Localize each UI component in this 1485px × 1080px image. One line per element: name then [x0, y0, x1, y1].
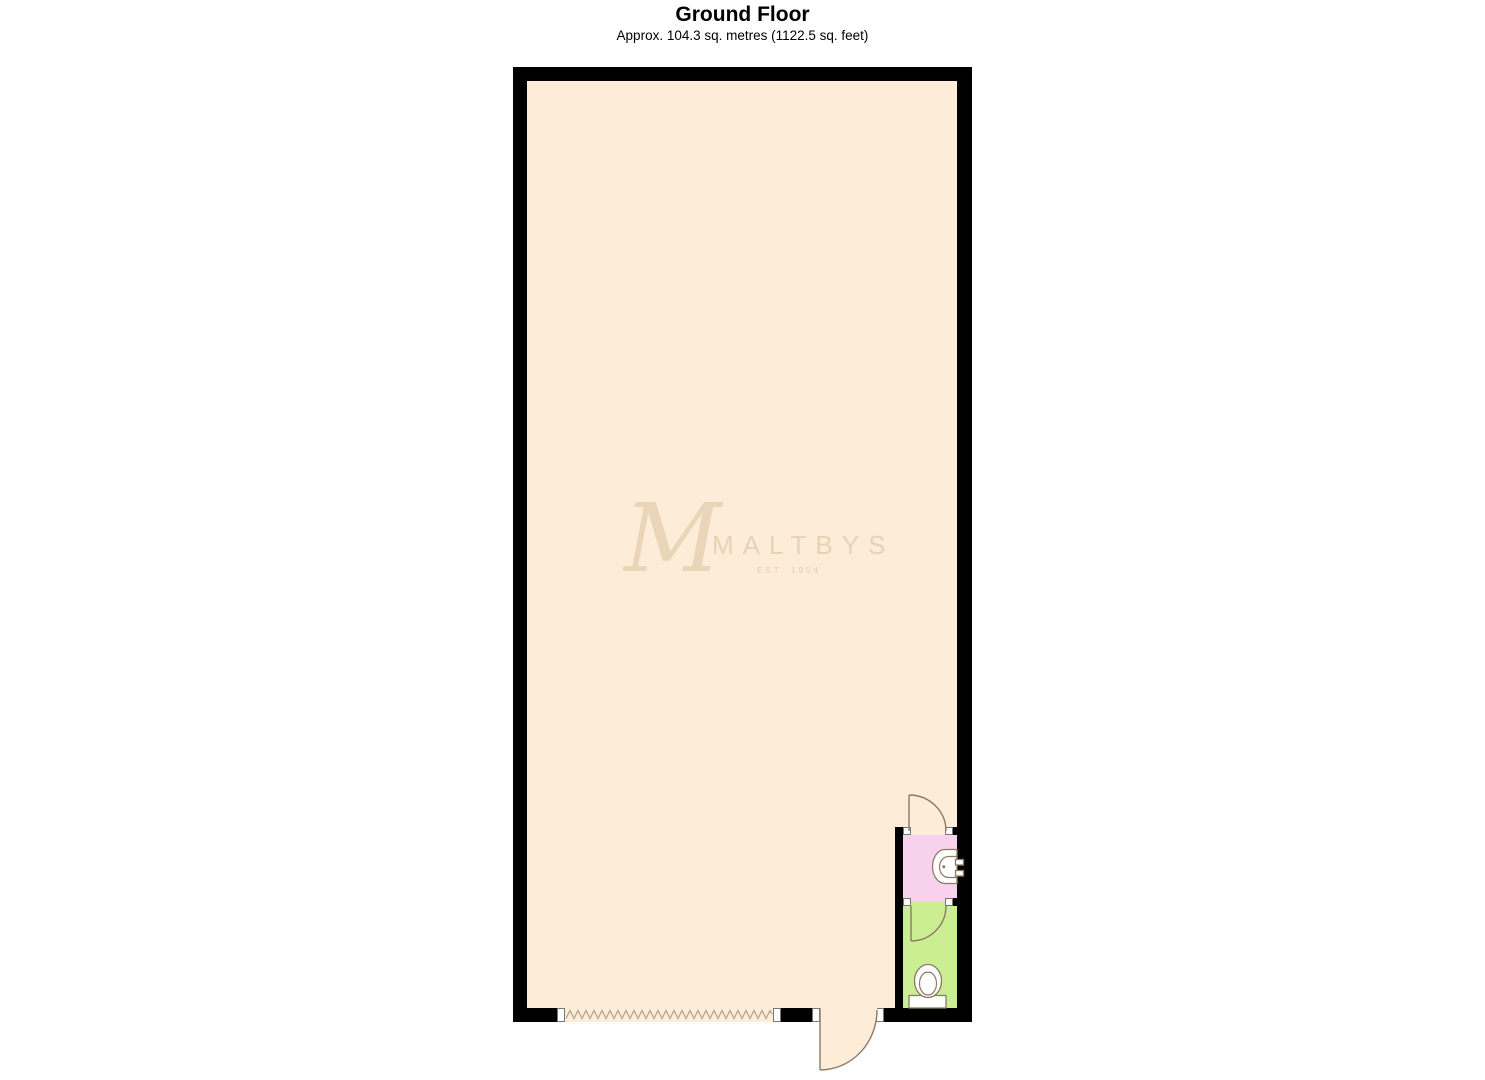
door-jamb: [773, 1008, 781, 1022]
door-jamb: [903, 827, 911, 835]
page-title: Ground Floor: [0, 3, 1485, 27]
window-opening: [565, 1008, 773, 1022]
basin-room-floor: [903, 835, 957, 898]
interior-wall-vertical: [895, 827, 903, 1008]
door-jamb: [903, 898, 911, 906]
wc-room-floor: [903, 906, 957, 1008]
floorplan-page: Ground Floor Approx. 104.3 sq. metres (1…: [0, 0, 1485, 1080]
door-jamb: [945, 827, 953, 835]
entrance-door-opening: [820, 1008, 876, 1022]
basin-room-door-opening: [911, 827, 945, 835]
door-jamb: [557, 1008, 565, 1022]
main-area-floor: [527, 81, 957, 1008]
door-jamb: [945, 898, 953, 906]
door-jamb: [812, 1008, 820, 1022]
wc-room-door-opening: [911, 898, 945, 906]
door-jamb: [876, 1008, 884, 1022]
page-subtitle: Approx. 104.3 sq. metres (1122.5 sq. fee…: [0, 28, 1485, 43]
